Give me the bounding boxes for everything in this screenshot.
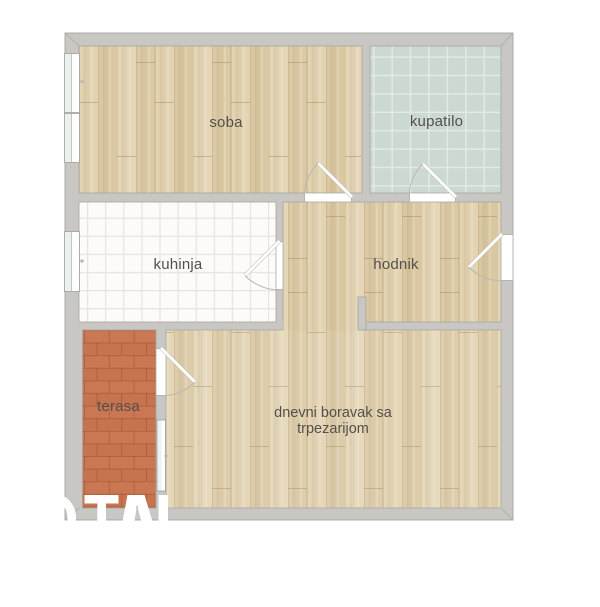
- svg-text:hodnik: hodnik: [373, 256, 419, 273]
- svg-text:dnevni boravak sa: dnevni boravak sa: [274, 405, 393, 421]
- svg-text:terasa: terasa: [97, 398, 140, 415]
- svg-text:trpezarijom: trpezarijom: [297, 421, 369, 437]
- svg-text:kupatilo: kupatilo: [410, 113, 463, 130]
- svg-text:kuhinja: kuhinja: [154, 256, 203, 273]
- svg-text:soba: soba: [209, 114, 243, 131]
